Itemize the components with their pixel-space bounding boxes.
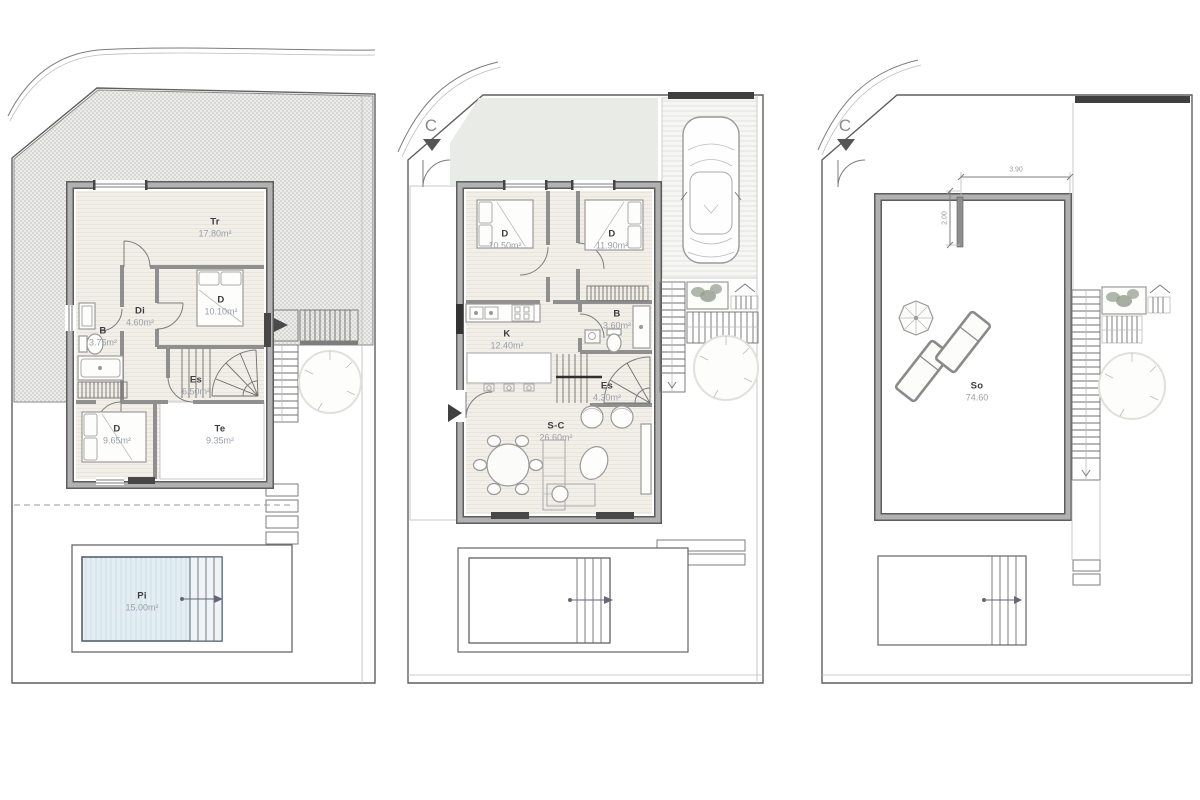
house-first-floor	[65, 180, 271, 485]
pool-first-floor	[72, 545, 292, 652]
exterior-right-column	[657, 282, 758, 565]
chevron-up-icon	[1150, 285, 1170, 293]
gate-door	[838, 160, 865, 187]
house-ground-floor	[448, 180, 658, 520]
floorplan-sheet: Tr 17.80m² D 10.10m² Di 4.60m² B 3.75m² …	[0, 0, 1200, 800]
plan-roof-solarium	[818, 60, 1192, 683]
tv-sideboard	[641, 424, 651, 494]
car	[681, 117, 741, 263]
tree	[1099, 353, 1165, 419]
bed-double	[585, 200, 643, 250]
chevron-up-icon	[735, 284, 755, 292]
wall-stub	[957, 197, 963, 247]
plan-ground-floor	[398, 62, 763, 683]
exterior-right-column	[1072, 285, 1170, 585]
carport	[662, 92, 757, 278]
tree	[299, 351, 361, 413]
bed-double	[477, 200, 533, 248]
gate-door	[423, 160, 450, 187]
garage-roof-edge	[668, 92, 754, 99]
pool-ground-floor	[458, 548, 688, 652]
solarium	[878, 172, 1073, 517]
floorplan-drawing	[0, 0, 1200, 800]
bed-double	[82, 412, 146, 462]
steps-column	[266, 484, 298, 544]
umbrella	[899, 301, 933, 335]
kitchen-island	[467, 353, 551, 383]
tree	[694, 336, 758, 400]
side-path	[410, 160, 460, 520]
bed-double	[197, 270, 243, 326]
front-garden	[450, 98, 658, 185]
garage-roof-edge	[1075, 96, 1190, 103]
road-line	[818, 60, 921, 155]
plan-first-floor	[8, 48, 375, 683]
pool-roof-level	[878, 556, 1026, 645]
